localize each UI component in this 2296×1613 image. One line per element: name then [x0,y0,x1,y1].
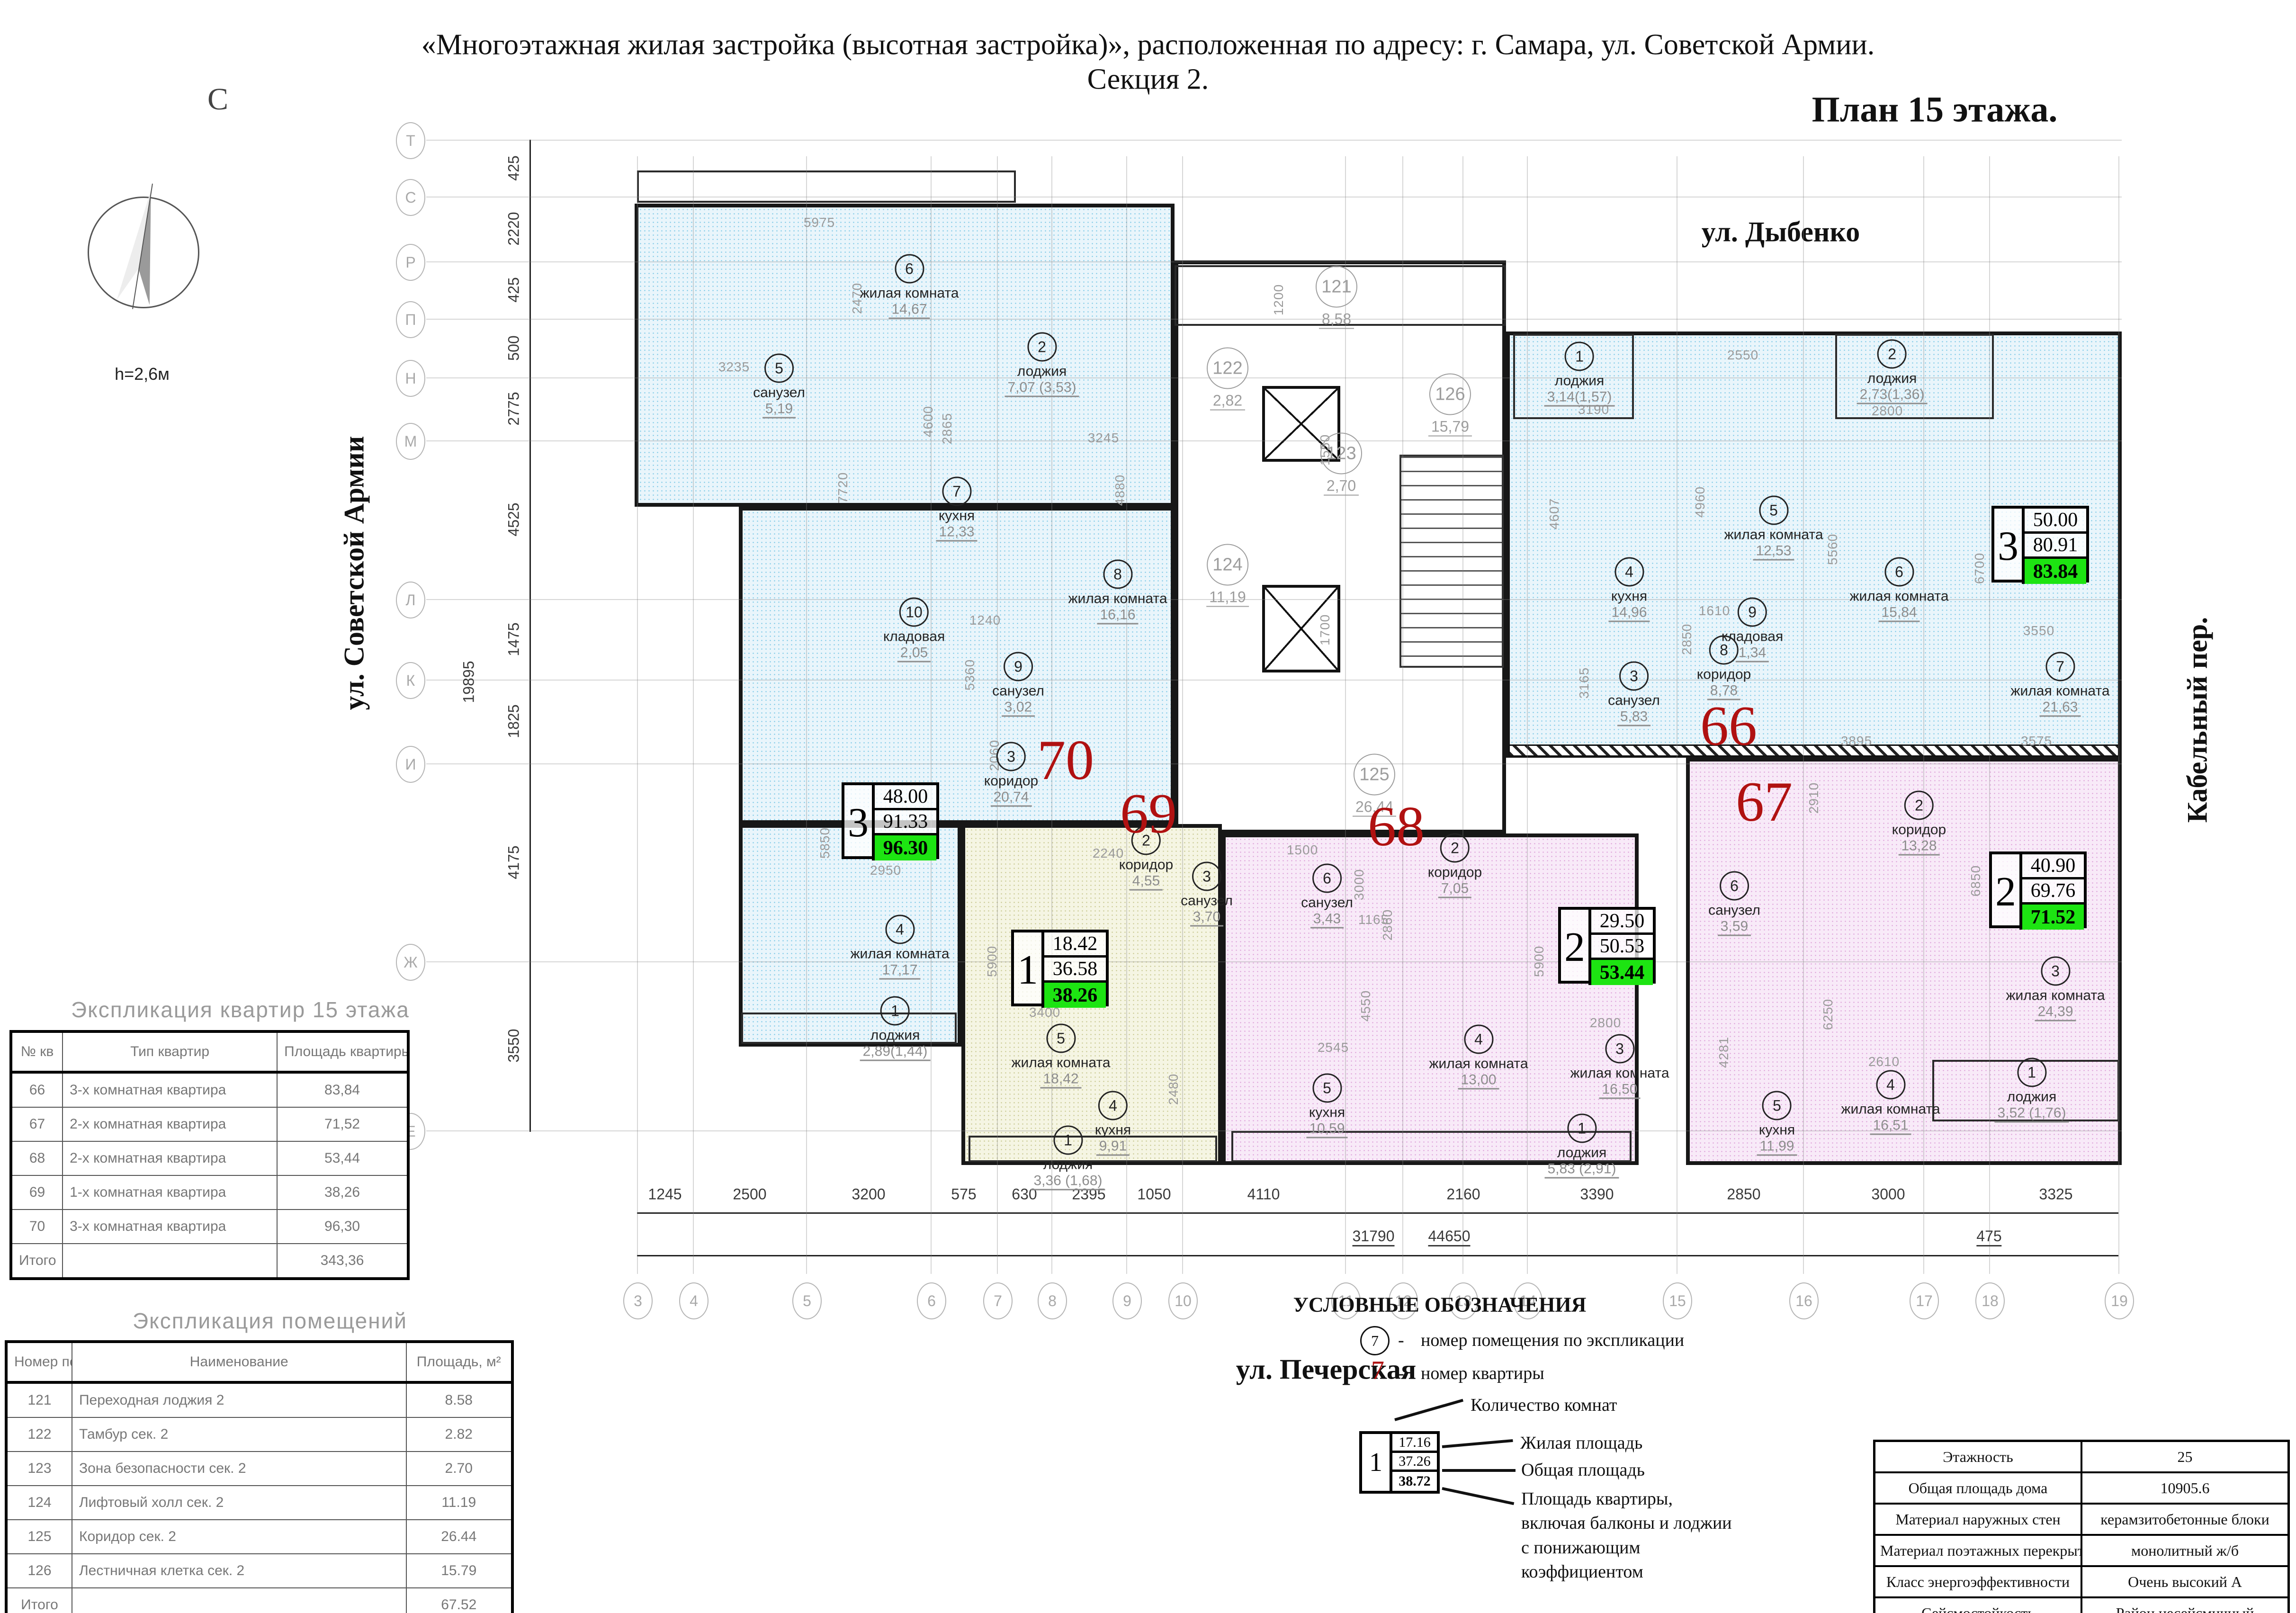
table-cell: 71,52 [277,1107,408,1141]
dim-label: 1245 [648,1186,682,1203]
info-table-cell: 10905.6 [2081,1472,2289,1504]
room-name: санузел [1608,693,1660,709]
table-header-cell: Номер поме-щения [6,1342,72,1382]
grid-bubble-С: С [396,179,425,216]
room-area: 3,59 [1718,919,1751,936]
apartment-67-badge: 240.9069.7671.52 [1989,851,2087,928]
room-area: 20,74 [990,789,1031,807]
grid-bubble-19: 19 [2105,1282,2134,1319]
dim-label: 425 [505,155,523,180]
room-name: лоджия [1004,364,1079,380]
common-room-label-122: 1222,82 [1207,348,1248,411]
room-label-70-6: 6жилая комната14,67 [860,254,959,319]
grid-bubble-10: 10 [1168,1282,1198,1319]
room-label-68-3: 3жилая комната16,50 [1570,1034,1669,1099]
dim-total-label: 475 [1976,1228,2001,1246]
interior-dim-label: 1165 [1358,912,1389,927]
badge-full-area: 53.44 [1591,960,1653,985]
room-name: лоджия [1544,373,1615,389]
interior-dim-label: 5850 [817,827,833,859]
room-area: 13,28 [1898,838,1939,856]
table-cell: 2.82 [406,1417,513,1452]
badge-living-area: 18.42 [1044,932,1106,958]
rooms-table-title: Экспликация помещений [133,1308,407,1334]
common-room-number-circle: 123 [1320,433,1362,475]
interior-dim-label: 2865 [940,413,955,444]
room-label-69-1: 1лоджия3,36 (1,68) [1031,1126,1105,1191]
interior-dim-label: 2850 [1679,624,1695,655]
room-area: 16,50 [1599,1082,1640,1099]
table-cell: Лифтовый холл сек. 2 [72,1486,406,1520]
common-room-number-circle: 125 [1354,754,1395,796]
room-label-66-2: 2лоджия2,73(1,36) [1857,340,1928,404]
room-name: лоджия [860,1028,931,1044]
interior-dim-label: 2480 [1166,1074,1181,1105]
room-name: кухня [1757,1122,1797,1138]
room-area: 2,05 [897,645,931,663]
dim-label: 3000 [1871,1186,1905,1203]
room-name: коридор [1119,857,1173,873]
room-label-70-1: 1лоджия2,89(1,44) [860,996,931,1061]
legend-item2-dash: - [1398,1363,1404,1384]
table-cell: Коридор сек. 2 [72,1520,406,1554]
room-number-circle: 9 [1004,652,1033,681]
interior-dim-label: 4600 [921,406,936,437]
legend-room-number-symbol: 7 [1360,1326,1390,1355]
room-area: 3,43 [1310,911,1344,929]
room-number-circle: 8 [1103,560,1132,589]
badge-full-area: 83.84 [2025,559,2086,584]
legend-sample-total-area: 37.26 [1392,1453,1437,1472]
room-label-68-2: 2коридор7,05 [1428,833,1482,898]
table-cell [72,1588,406,1613]
room-area: 17,17 [879,962,920,980]
badge-living-area: 29.50 [1591,910,1653,935]
badge-room-count: 2 [1561,910,1591,985]
interior-dim-label: 4960 [1693,486,1708,518]
dim-label: 2160 [1446,1186,1480,1203]
room-area: 7,07 (3,53) [1004,380,1079,397]
interior-dim-label: 6850 [1968,865,1983,896]
room-area: 3,36 (1,68) [1031,1173,1105,1191]
room-label-66-1: 1лоджия3,14(1,57) [1544,342,1615,407]
common-room-area: 2,82 [1210,392,1245,411]
room-name: жилая комната [2010,683,2109,699]
room-number-circle: 3 [996,742,1026,771]
room-area: 14,96 [1608,605,1650,622]
table-cell: 125 [6,1520,72,1554]
interior-dim-label: 5900 [1532,946,1547,977]
legend-apartment-number-symbol: 7 [1371,1355,1384,1386]
interior-dim-label: 2545 [1318,1040,1349,1055]
room-number-circle: 1 [1053,1126,1083,1155]
table-header-cell: Наименование [72,1342,406,1382]
room-label-67-3: 3жилая комната24,39 [2006,957,2105,1022]
room-number-circle: 5 [1046,1024,1076,1053]
legend-sample-badge: 1 17.16 37.26 38.72 [1359,1431,1440,1494]
sheet-title-line2: Секция 2. [1087,63,1209,97]
plan-label: План 15 этажа. [1812,90,2058,131]
legend-leader-line [1442,1469,1516,1472]
table-cell: 124 [6,1486,72,1520]
dim-label: 2850 [1727,1186,1760,1203]
grid-bubble-К: К [396,662,425,699]
interior-dim-label: 7720 [835,472,851,503]
room-name: кладовая [883,629,945,645]
room-label-66-8: 8коридор8,78 [1697,636,1751,700]
interior-dim-label: 3895 [1841,734,1872,749]
table-cell: 8.58 [406,1382,513,1417]
common-room-label-121: 1218,58 [1316,266,1357,329]
interior-dim-label: 3000 [1352,869,1367,900]
dim-label: 425 [505,277,523,302]
room-name: жилая комната [1011,1055,1110,1071]
dim-label: 3390 [1580,1186,1614,1203]
room-number-circle: 9 [1738,598,1767,627]
room-label-70-7: 7кухня12,33 [936,477,977,542]
apartment-70-number: 70 [1037,727,1094,793]
room-number-circle: 6 [1720,871,1749,901]
room-area: 13,00 [1458,1072,1499,1090]
table-cell: Переходная лоджия 2 [72,1382,406,1417]
interior-dim-label: 1200 [1271,284,1286,315]
room-name: коридор [1428,865,1482,881]
room-number-circle: 2 [1904,791,1934,820]
table-header-cell: Площадь, м² [406,1342,513,1382]
table-cell: 66 [11,1072,63,1107]
info-table-cell: Очень высокий А [2081,1566,2289,1597]
table-cell: 38,26 [277,1175,408,1210]
legend-sample-room-count: 1 [1362,1434,1392,1491]
dim-total-label: 44650 [1428,1228,1471,1246]
table-cell: 126 [6,1554,72,1588]
staircase-icon [1399,455,1504,668]
dim-total-label: 19895 [460,661,478,703]
room-number-circle: 3 [2041,957,2070,986]
room-name: жилая комната [2006,988,2105,1004]
apartment-69-number: 69 [1120,781,1177,846]
loggia-outline [637,170,1016,203]
room-number-circle: 2 [1877,340,1907,369]
apartment-70-area [739,507,1175,824]
legend-leader-line [1442,1487,1514,1505]
apartment-69-badge: 118.4236.5838.26 [1011,930,1109,1006]
room-label-67-4: 4жилая комната16,51 [1841,1070,1940,1135]
interior-dim-label: 4281 [1716,1037,1731,1068]
table-cell: 123 [6,1452,72,1486]
room-name: жилая комната [1724,527,1823,543]
room-number-circle: 3 [1605,1034,1634,1064]
interior-dim-label: 5560 [1825,534,1840,565]
grid-bubble-Н: Н [396,360,425,397]
legend-sample-full-area: 38.72 [1392,1472,1437,1491]
room-name: жилая комната [1849,589,1948,605]
room-number-circle: 1 [1567,1114,1596,1143]
interior-dim-label: 2550 [1727,348,1758,363]
table-cell: 3-х комнатная квартира [63,1210,277,1244]
room-name: жилая комната [1429,1056,1528,1072]
room-label-68-4: 4жилая комната13,00 [1429,1025,1528,1090]
apartment-70-area [635,204,1175,507]
interior-dim-label: 3575 [2021,734,2052,749]
table-cell: Тамбур сек. 2 [72,1417,406,1452]
room-label-68-6: 6санузел3,43 [1301,864,1353,929]
legend-item2-text: номер квартиры [1421,1363,1544,1384]
badge-living-area: 48.00 [875,785,936,810]
badge-full-area: 71.52 [2022,905,2084,930]
room-area: 5,83 (2,91) [1544,1161,1619,1179]
dim-label: 2220 [505,212,523,245]
room-label-68-1: 1лоджия5,83 (2,91) [1544,1114,1619,1179]
street-dybenko: ул. Дыбенко [1702,216,1860,249]
table-cell: 67 [11,1107,63,1141]
grid-bubble-17: 17 [1910,1282,1939,1319]
badge-living-area: 50.00 [2025,509,2086,534]
room-label-66-4: 4кухня14,96 [1608,557,1650,622]
room-label-70-3: 3коридор20,74 [984,742,1038,807]
legend-title: УСЛОВНЫЕ ОБОЗНАЧЕНИЯ [1293,1293,1587,1317]
street-pecherskaya: ул. Печерская [1236,1353,1417,1386]
interior-dim-label: 2610 [1868,1054,1900,1069]
room-area: 2,89(1,44) [860,1044,931,1061]
apartment-68-badge: 229.5050.5353.44 [1558,907,1656,984]
room-label-66-3: 3санузел5,83 [1608,662,1660,726]
room-number-circle: 1 [1565,342,1594,371]
room-label-70-10: 10кладовая2,05 [883,598,945,663]
badge-full-area: 96.30 [875,835,936,860]
bottom-dim-line [637,1212,2118,1214]
room-area: 14,67 [888,302,930,319]
room-area: 2,73(1,36) [1857,387,1928,404]
table-cell: 11.19 [406,1486,513,1520]
interior-dim-label: 5975 [804,215,835,230]
interior-dim-label: 4607 [1547,498,1562,529]
grid-line-horizontal [426,140,2122,141]
table-cell: 2.70 [406,1452,513,1486]
room-number-circle: 4 [1876,1070,1905,1100]
interior-dim-label: 2910 [1806,782,1821,814]
room-name: жилая комната [1570,1066,1669,1082]
dim-label: 500 [505,335,523,360]
north-letter: С [207,81,228,117]
street-kabelny-per: Кабельный пер. [2181,617,2214,823]
grid-bubble-18: 18 [1975,1282,2005,1319]
room-number-circle: 8 [1709,636,1739,665]
room-area: 24,39 [2035,1004,2076,1022]
grid-bubble-П: П [396,301,425,338]
room-label-69-3: 3санузел3,70 [1181,862,1233,927]
room-label-70-9: 9санузел3,02 [992,652,1044,717]
room-number-circle: 2 [1027,332,1057,362]
room-name: кухня [1608,589,1650,605]
interior-dim-label: 6700 [1972,553,1987,584]
interior-dim-label: 3165 [1577,667,1592,699]
table-cell: Зона безопасности сек. 2 [72,1452,406,1486]
table-header-cell: Площадь квартиры [277,1031,408,1072]
room-number-circle: 5 [1312,1074,1342,1103]
room-area: 10,59 [1306,1121,1347,1138]
room-number-circle: 4 [885,915,915,944]
grid-bubble-И: И [396,746,425,783]
grid-bubble-7: 7 [983,1282,1013,1319]
table-cell: 121 [6,1382,72,1417]
dim-label: 3200 [852,1186,885,1203]
room-label-70-2: 2лоджия7,07 (3,53) [1004,332,1079,397]
table-cell: 122 [6,1417,72,1452]
table-cell: Итого [11,1244,63,1279]
dim-label: 2500 [733,1186,766,1203]
room-area: 3,70 [1190,909,1223,927]
room-name: кухня [936,508,977,524]
grid-bubble-16: 16 [1789,1282,1819,1319]
badge-room-count: 2 [1992,854,2022,930]
interior-dim-label: 1700 [1318,614,1333,645]
dim-label: 1825 [505,704,523,738]
table-cell: 67.52 [406,1588,513,1613]
info-table-cell: керамзитобетонные блоки [2081,1504,2289,1535]
room-number-circle: 6 [895,254,924,284]
room-number-circle: 3 [1192,862,1221,891]
info-table-cell: Класс энергоэффективности [1874,1566,2082,1597]
grid-bubble-15: 15 [1663,1282,1692,1319]
room-area: 4,55 [1130,873,1163,891]
room-label-67-2: 2коридор13,28 [1892,791,1946,856]
room-number-circle: 1 [880,996,910,1026]
room-name: жилая комната [1841,1102,1940,1118]
room-name: лоджия [1031,1157,1105,1173]
room-label-66-5: 5жилая комната12,53 [1724,496,1823,561]
table-cell: 3-х комнатная квартира [63,1072,277,1107]
interior-dim-label: 2800 [1590,1015,1621,1031]
room-label-70-5: 5санузел5,19 [753,354,805,419]
common-room-label-123: 1232,70 [1320,433,1362,496]
room-area: 5,19 [762,401,796,419]
left-dim-line [529,140,531,1132]
interior-dim-label: 2950 [870,863,901,878]
legend-callout-full: Площадь квартиры, включая балконы и лодж… [1521,1487,1739,1584]
room-name: лоджия [1857,371,1928,387]
room-name: лоджия [1544,1145,1619,1161]
legend-leader-line [1442,1439,1513,1448]
room-name: санузел [992,683,1044,699]
room-number-circle: 6 [1884,557,1914,587]
info-table-cell: Материал наружных стен [1874,1504,2082,1535]
grid-bubble-Т: Т [396,122,425,159]
info-table-cell: монолитный ж/б [2081,1535,2289,1566]
table-cell: 1-х комнатная квартира [63,1175,277,1210]
room-area: 18,42 [1040,1071,1081,1089]
interior-dim-label: 6250 [1821,999,1836,1030]
table-cell: 53,44 [277,1141,408,1175]
table-header-cell: № кв [11,1031,63,1072]
grid-bubble-6: 6 [917,1282,946,1319]
room-label-70-8: 8жилая комната16,16 [1068,560,1167,625]
table-header-cell: Тип квартир [63,1031,277,1072]
floor-plan-sheet: «Многоэтажная жилая застройка (высотная … [0,0,2296,1613]
common-room-area: 8,58 [1319,311,1354,329]
badge-total-area: 36.58 [1044,958,1106,983]
table-cell: 69 [11,1175,63,1210]
dim-label: 575 [951,1186,976,1203]
table-cell: 2-х комнатная квартира [63,1107,277,1141]
table-cell: Лестничная клетка сек. 2 [72,1554,406,1588]
room-name: лоджия [1994,1089,2069,1105]
table-cell: 96,30 [277,1210,408,1244]
room-name: коридор [1892,822,1946,838]
interior-dim-label: 5900 [985,946,1000,977]
interior-dim-label: 2800 [1872,403,1903,419]
room-area: 3,02 [1002,699,1035,717]
street-sovetskoy-armii: ул. Советской Армии [338,436,371,710]
table-cell: 15.79 [406,1554,513,1588]
common-room-area: 11,19 [1206,589,1249,607]
apartment-70-badge: 348.0091.3396.30 [842,782,939,859]
legend-item1-dash: - [1398,1330,1404,1351]
legend-callout-total: Общая площадь [1521,1460,1645,1480]
interior-dim-label: 4550 [1358,990,1373,1022]
room-number-circle: 6 [1312,864,1342,893]
grid-bubble-9: 9 [1112,1282,1142,1319]
room-label-66-6: 6жилая комната15,84 [1849,557,1948,622]
room-number-circle: 7 [2045,652,2075,681]
interior-dim-label: 5360 [962,659,978,690]
badge-full-area: 38.26 [1044,983,1106,1008]
room-area: 3,14(1,57) [1544,389,1615,407]
badge-total-area: 69.76 [2022,879,2084,905]
room-name: жилая комната [860,286,959,302]
room-number-circle: 4 [1614,557,1644,587]
badge-living-area: 40.90 [2022,854,2084,879]
apartment-67-number: 67 [1736,769,1793,834]
table-cell: 343,36 [277,1244,408,1279]
room-number-circle: 5 [1762,1091,1792,1120]
room-area: 15,84 [1878,605,1919,622]
table-cell: 26.44 [406,1520,513,1554]
room-number-circle: 7 [942,477,971,506]
apartment-table: № квТип квартирПлощадь квартиры663-х ком… [9,1030,410,1280]
room-name: коридор [984,773,1038,789]
room-name: жилая комната [1068,591,1167,607]
room-number-circle: 3 [1619,662,1649,691]
room-number-circle: 5 [1759,496,1788,525]
sheet-title-line1: «Многоэтажная жилая застройка (высотная … [422,28,1875,62]
room-name: жилая комната [850,946,949,962]
room-name: санузел [1708,903,1760,919]
room-name: санузел [1181,893,1233,909]
room-number-circle: 10 [899,598,929,627]
common-room-label-126: 12615,79 [1428,374,1472,437]
room-area: 21,63 [2039,699,2081,717]
info-table-cell: Этажность [1874,1441,2082,1473]
info-table-cell: Общая площадь дома [1874,1472,2082,1504]
table-cell: 68 [11,1141,63,1175]
dim-total-label: 31790 [1353,1228,1395,1246]
room-label-67-5: 5кухня11,99 [1757,1091,1797,1156]
dim-label: 3550 [505,1029,523,1062]
common-room-number-circle: 122 [1207,348,1248,389]
grid-bubble-4: 4 [679,1282,709,1319]
apartment-table-title: Экспликация квартир 15 этажа [71,997,410,1022]
dim-label: 4525 [505,502,523,536]
legend-item1-text: номер помещения по экспликации [1421,1330,1684,1351]
info-table-cell: Район несейсмичный [2081,1597,2289,1613]
room-area: 16,16 [1097,607,1138,625]
legend-leader-line [1394,1399,1463,1421]
grid-bubble-Р: Р [396,244,425,281]
room-number-circle: 1 [2017,1058,2046,1087]
info-table-cell: Материал поэтажных перекрытий [1874,1535,2082,1566]
grid-bubble-Ж: Ж [396,944,425,981]
